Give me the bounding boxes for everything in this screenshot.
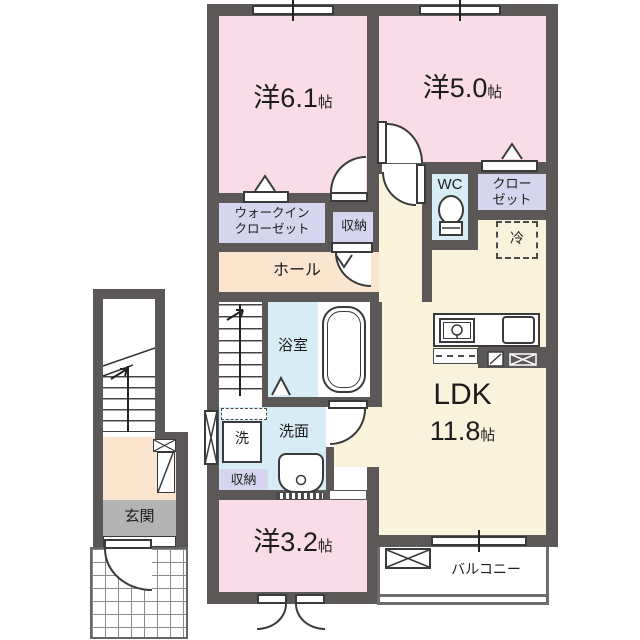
bedroom3-label: 洋3.2帖 [219, 528, 367, 558]
bedroom1-door-leaf [330, 192, 368, 202]
toilet-icon [436, 194, 466, 240]
entrance-storage-x [153, 439, 176, 452]
balcony-rail-bottom-outer [377, 602, 549, 605]
bedroom3-door-leaf-right [295, 594, 325, 604]
bedroom2-label: 洋5.0帖 [379, 74, 546, 104]
washer-label: 洗 [222, 431, 262, 446]
window-washroom-x [204, 410, 218, 465]
stairs-1f-steps [103, 376, 155, 432]
window-tick [478, 530, 480, 552]
hall-label: ホール [219, 262, 375, 280]
wall [422, 240, 478, 250]
doorway-bedroom3 [330, 491, 366, 499]
washbasin [278, 453, 324, 493]
washroom-label: 洗面 [262, 424, 326, 441]
closet-label: クロー ゼット [478, 176, 546, 207]
wall [207, 4, 219, 604]
kitchen-bowtie-icon [509, 353, 537, 366]
walkin-opening-marker [253, 174, 277, 192]
kitchen-faucet-icon [450, 324, 464, 340]
wc-door-leaf [416, 164, 426, 204]
stairs-1f-arrow-icon [108, 364, 134, 382]
bedroom3-door-swing-right [295, 604, 325, 630]
stairs-2f-arrow-icon [224, 305, 250, 323]
bathtub [322, 306, 366, 393]
balcony-label: バルコニー [430, 562, 542, 577]
entrance-label: 玄関 [103, 509, 176, 526]
balcony-rail-right [546, 547, 549, 605]
balcony-rail-bottom [377, 594, 549, 597]
bedroom2-door-leaf [377, 121, 387, 164]
washbasin-drain-icon [295, 474, 307, 486]
doorway-bedroom2 [382, 164, 420, 172]
window-tick [292, 0, 294, 21]
walkin-opening-bar [243, 191, 289, 203]
wall [93, 289, 103, 547]
bath-label: 浴室 [266, 338, 320, 355]
wall [478, 210, 546, 220]
storage-lower-label: 収納 [219, 473, 268, 487]
wall [468, 174, 478, 250]
window-tick [459, 0, 461, 21]
fridge-label: 冷 [496, 231, 538, 246]
wc-label: WC [432, 177, 468, 194]
wall [155, 289, 165, 440]
wall [367, 16, 379, 203]
wall [207, 292, 379, 302]
wall [326, 447, 334, 490]
wall [546, 4, 558, 547]
washroom-door-leaf [328, 400, 368, 409]
floor-plan: 洋6.1帖 洋5.0帖 洋3.2帖 LDK 11.8帖 ホール ウォークイン ク… [0, 0, 640, 640]
kitchen-slash-square-icon [487, 351, 504, 367]
ldk-label: LDK 11.8帖 [379, 378, 546, 447]
closet-opening-marker [500, 142, 524, 160]
kitchen-open-counter [433, 348, 478, 364]
wall [176, 440, 188, 547]
closet-opening-bar [481, 160, 538, 172]
front-door-leaf [104, 539, 152, 549]
entrance-inner-door-swing [157, 452, 175, 493]
washbasin-counter-hatch [276, 492, 324, 500]
bedroom3-door-leaf-left [257, 594, 287, 604]
bath-bifold-marker [270, 376, 292, 396]
walkin-closet-label: ウォークイン クローゼット [219, 206, 325, 237]
kitchen-stove [502, 316, 535, 344]
washroom-shelf [221, 408, 267, 420]
wall [207, 592, 379, 604]
storage-upper-label: 収納 [333, 219, 375, 233]
bedroom1-label: 洋6.1帖 [219, 84, 367, 114]
storage-upper-door-bar [331, 242, 373, 253]
balcony-equipment-x [385, 548, 431, 569]
bedroom3-door-swing-left [257, 604, 287, 630]
